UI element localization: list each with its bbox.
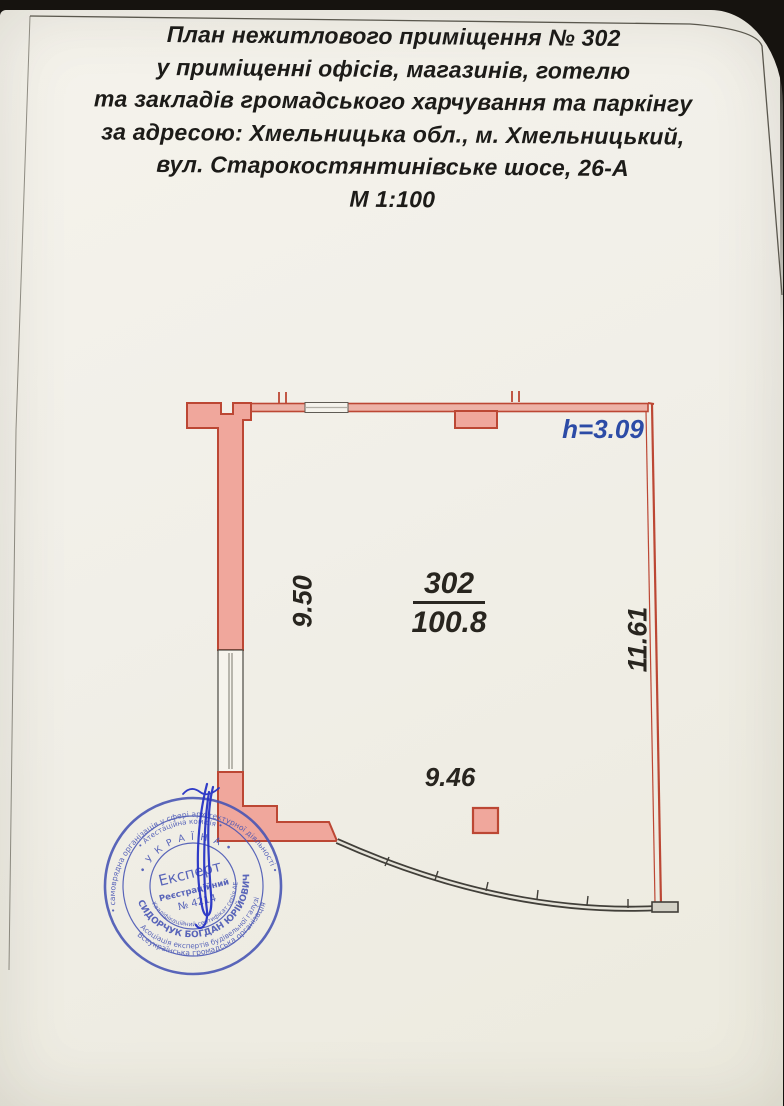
wall-left-upper [187, 403, 251, 650]
room-label: 302 100.8 [398, 568, 500, 638]
dimension-right: 11.61 [623, 600, 654, 680]
photo-background: • самоврядна організація у сфері архітек… [0, 0, 784, 1106]
curved-wall [337, 841, 678, 912]
room-number: 302 [413, 568, 485, 604]
dimension-left: 9.50 [288, 567, 319, 637]
document-title: План нежитлового приміщення № 302 у прим… [11, 17, 775, 219]
dimension-bottom: 9.46 [408, 762, 492, 793]
wall-pier [455, 411, 497, 428]
title-line-4: за адресою: Хмельницька обл., м. Хмельни… [12, 114, 774, 153]
title-line-scale: М 1:100 [11, 179, 773, 218]
curved-wall-end-cap [652, 902, 678, 912]
wall-stub-ticks [279, 391, 519, 403]
room-area: 100.8 [398, 607, 500, 638]
ceiling-height-label: h=3.09 [548, 414, 658, 445]
window-left [218, 650, 243, 772]
column [473, 808, 498, 833]
